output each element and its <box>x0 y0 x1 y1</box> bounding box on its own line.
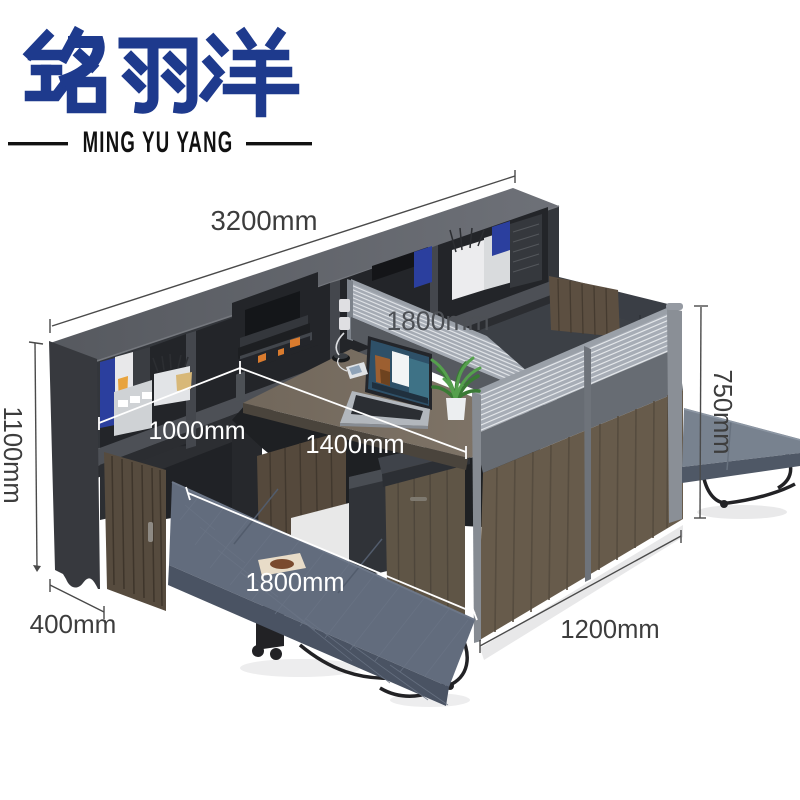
svg-text:1100mm: 1100mm <box>0 406 26 503</box>
svg-text:3200mm: 3200mm <box>211 205 318 236</box>
svg-text:1400mm: 1400mm <box>305 431 404 459</box>
svg-text:1200mm: 1200mm <box>560 616 659 644</box>
svg-text:1000mm: 1000mm <box>148 417 245 445</box>
svg-text:750mm: 750mm <box>708 369 736 454</box>
svg-text:1800mm: 1800mm <box>386 306 489 336</box>
svg-text:MING YU YANG: MING YU YANG <box>83 126 234 160</box>
svg-text:1800mm: 1800mm <box>245 569 344 597</box>
svg-text:400mm: 400mm <box>30 609 117 639</box>
